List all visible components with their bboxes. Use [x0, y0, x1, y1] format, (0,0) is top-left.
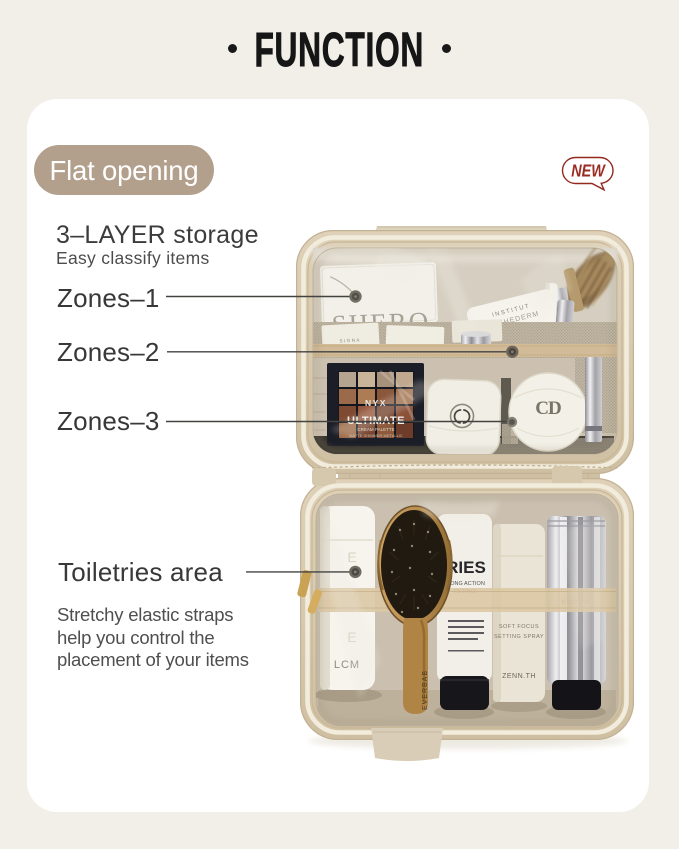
svg-text:E: E	[347, 549, 356, 565]
svg-text:LONG ACTION: LONG ACTION	[447, 581, 485, 587]
svg-text:SOFT FOCUS: SOFT FOCUS	[499, 624, 539, 630]
svg-text:SETTING SPRAY: SETTING SPRAY	[494, 634, 544, 640]
svg-text:EVERBAB: EVERBAB	[422, 670, 429, 710]
svg-text:CD: CD	[535, 398, 561, 419]
svg-text:ZENN.TH: ZENN.TH	[502, 673, 536, 680]
